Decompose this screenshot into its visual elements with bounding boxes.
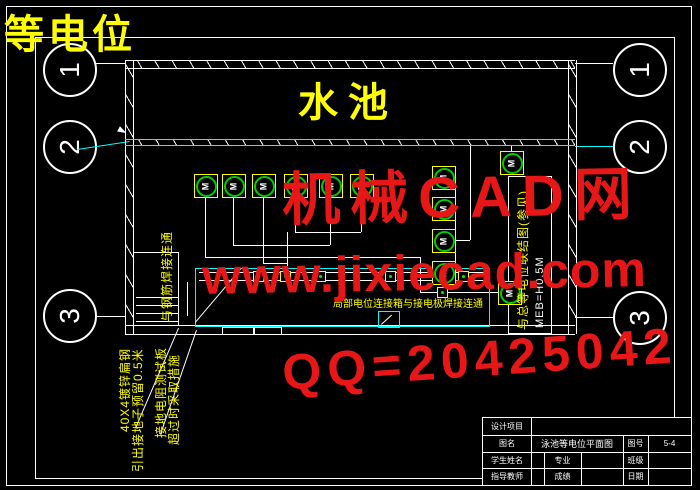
pump-motor-symbol: M [222,174,246,198]
note-resistance-measure: 超过时采取措施 [165,354,182,445]
grid-line [96,316,125,317]
grid-bubble-label: 3 [54,308,86,324]
wall-opening [254,327,282,335]
motor-letter: M [260,182,269,190]
pump-motor-symbol: M [252,174,276,198]
title-block-line [581,452,582,485]
pool-label: 水池 [298,70,398,128]
stair-wall [187,282,188,316]
tb-student-label: 学生姓名 [483,452,531,468]
grid-bubble-label: 2 [54,139,86,155]
grid-line [575,63,613,64]
grid-bubble-label: 1 [624,62,656,78]
bond-wire [455,240,470,241]
grid-bubble-left-3: 3 [43,289,97,343]
grid-bubble-label: 1 [54,62,86,78]
grid-bubble-right-1: 1 [613,43,667,97]
pool-wall-left [125,60,134,334]
stair-wall [178,252,179,325]
drawing-title-label: 等电位 [4,2,136,60]
note-rebar-weld: 与钢筋焊接连通 [158,231,175,322]
motor-icon: M [196,176,217,197]
tb-no-value: 5-4 [648,435,691,452]
motor-icon: M [254,176,275,197]
tb-major-label: 专业 [544,452,581,468]
tb-class-label: 班级 [623,452,648,468]
pool-wall-top [125,60,575,69]
tb-teacher-label: 指导教师 [483,468,531,485]
note-lead-out: 引出接地子预留0.5米 [129,348,146,472]
tb-grade-label: 成绩 [544,468,581,485]
tb-date-label: 日期 [623,468,648,485]
tb-project-label: 设计项目 [483,418,531,435]
pool-wall-divider [125,139,575,146]
tb-no-label: 图号 [623,435,648,452]
equipment-box [378,311,400,328]
wall-opening [222,327,254,335]
motor-icon: M [224,176,245,197]
motor-letter: M [202,182,211,190]
tb-name-value: 泳池等电位平面图 [531,435,623,452]
title-block: 设计项目 图名 泳池等电位平面图 图号 5-4 学生姓名 专业 班级 指导教师 … [482,417,692,486]
grid-line [96,63,125,64]
grid-line [575,317,613,318]
watermark-url: www.jixiecad.com [202,240,648,306]
bond-wire [233,196,234,245]
cad-drawing-canvas: 1 2 3 1 2 3 水池 M M M M M M M M M M M M [0,0,700,490]
motor-letter: M [230,182,239,190]
tb-name-label: 图名 [483,435,531,452]
watermark-brand: 机械CAD网 [281,147,642,237]
pump-motor-symbol: M [194,174,218,198]
